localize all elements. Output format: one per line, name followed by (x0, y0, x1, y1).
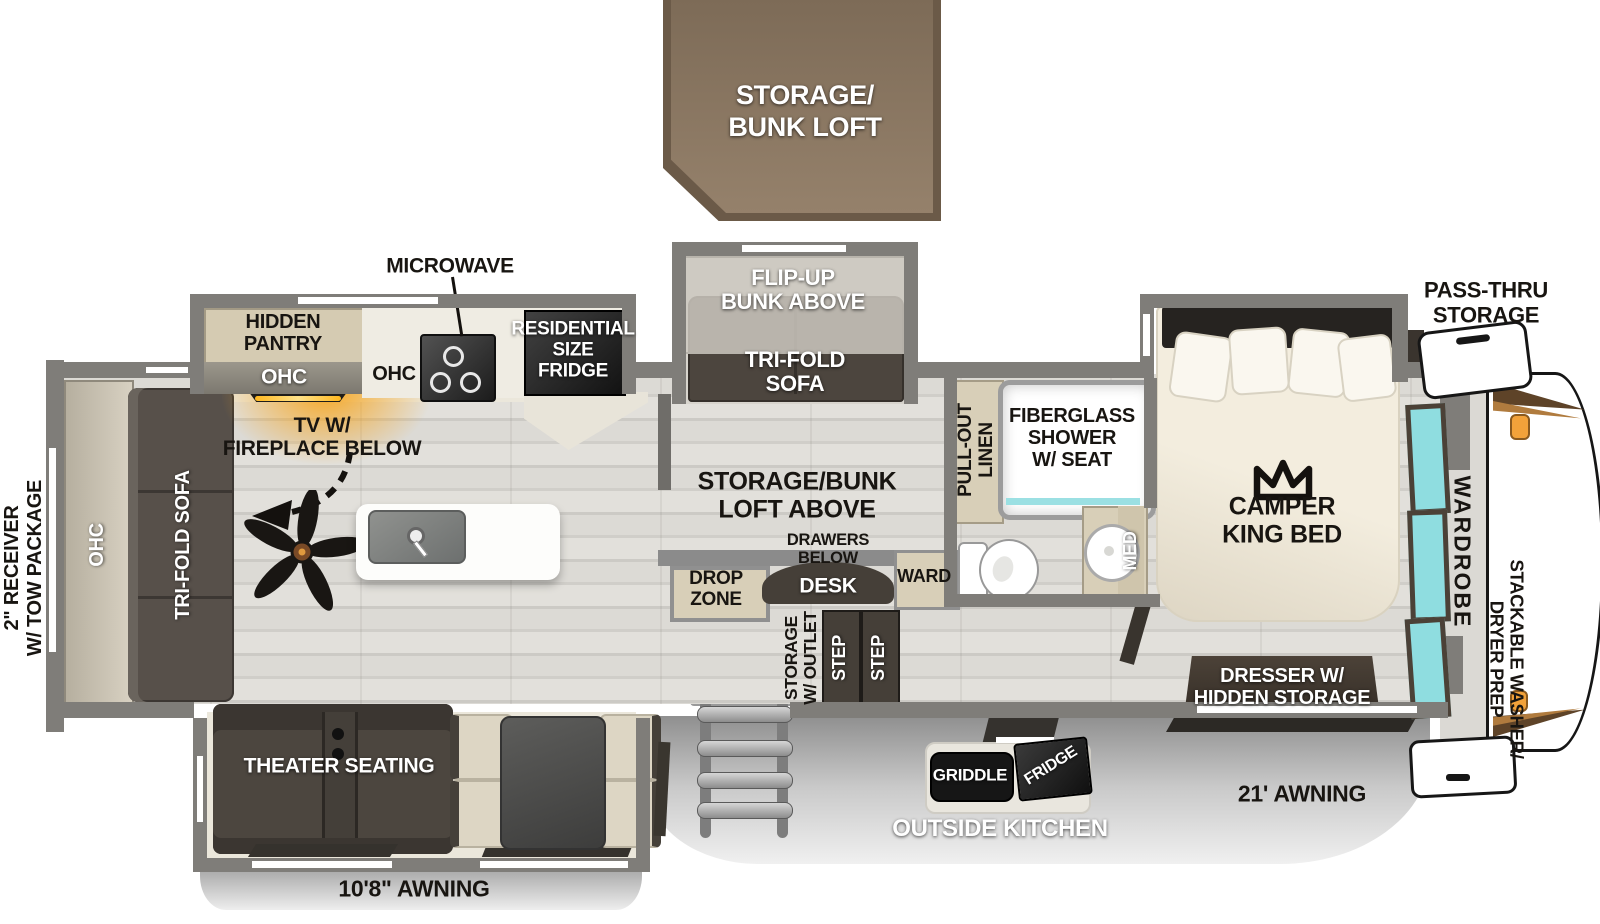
fireplace-flame-strip (255, 396, 341, 401)
griddle-label: GRIDDLE (933, 767, 1007, 786)
step-label-2: STEP (869, 635, 889, 681)
pass-thru-label: PASS-THRUSTORAGE (1424, 278, 1548, 329)
shower-sill (1006, 498, 1140, 505)
loft-above-label: STORAGE/BUNKLOFT ABOVE (698, 469, 897, 524)
rear-window-strip (49, 448, 56, 652)
dinette-chair (600, 714, 661, 780)
dresser-label: DRESSER W/HIDDEN STORAGE (1194, 665, 1371, 709)
counter-ohc-label: OHC (372, 363, 416, 385)
hidden-pantry-label: HIDDENPANTRY (244, 311, 322, 355)
bed-slide-wall-right (1392, 294, 1408, 382)
theater-slide-window (197, 756, 203, 822)
rear-sofa-label: TRI-FOLD SOFA (172, 470, 194, 619)
drop-zone-label: DROPZONE (689, 569, 743, 611)
theater-bottom-window (252, 861, 392, 868)
awning-left-label: 10'8" AWNING (338, 876, 489, 901)
tv-fireplace-label: TV W/FIREPLACE BELOW (223, 414, 422, 460)
entry-step-rung (697, 706, 793, 723)
stove-cooktop (420, 334, 496, 402)
microwave-label: MICROWAVE (386, 254, 514, 277)
bunk-slide-wall-right (904, 242, 918, 404)
theater-bottom-window (480, 861, 628, 868)
bed-pillow (1336, 333, 1397, 403)
med-label: MED (1121, 531, 1141, 570)
washer-prep-label: STACKABLE WASHER/DRYER PREP (1486, 559, 1527, 758)
drawers-below-label: DRAWERSBELOW (787, 531, 869, 567)
bath-wall-bottom (944, 594, 1160, 607)
awning-right-label: 21' AWNING (1238, 781, 1366, 806)
rear-ohc-label: OHC (86, 523, 108, 567)
cap-handle-top (1510, 414, 1530, 440)
bed-pillow (1228, 326, 1290, 396)
bunk-slide-wall-left (672, 242, 686, 404)
pass-thru-door (1416, 320, 1533, 401)
loft-box-label: STORAGE/BUNK LOFT (728, 80, 881, 144)
flip-up-bunk-label: FLIP-UPBUNK ABOVE (721, 266, 865, 314)
bed-pillow (1168, 330, 1235, 403)
front-window (1407, 509, 1451, 622)
front-window (1405, 403, 1451, 515)
entry-step-rung (697, 802, 793, 819)
bed-slide-window (1143, 314, 1150, 356)
stove-burner (443, 346, 464, 367)
storage-outlet-label: STORAGEW/ OUTLET (782, 611, 821, 705)
theater-seating-label: THEATER SEATING (244, 754, 435, 777)
king-bed-label: CAMPERKING BED (1222, 494, 1342, 549)
step-label-1: STEP (830, 635, 850, 681)
bath-wall-right (1144, 378, 1157, 508)
ward-label: WARD (897, 567, 951, 587)
kitchen-slide-wall-left (190, 294, 204, 394)
bath-sink-drain (1104, 546, 1114, 556)
top-window-strip-a (146, 367, 188, 373)
bunk-sofa-label: TRI-FOLDSOFA (745, 348, 845, 396)
theater-slide-wall-right (636, 718, 650, 872)
floor-mat (248, 844, 398, 857)
top-wall-b (634, 362, 674, 378)
stove-burner (430, 372, 451, 393)
shower-label: FIBERGLASS SHOWER W/ SEAT (1009, 405, 1135, 471)
residential-fridge-label: RESIDENTIAL SIZE FRIDGE (511, 320, 634, 383)
pull-out-linen-label: PULL-OUTLINEN (956, 403, 998, 497)
theater-cupholder (332, 728, 344, 740)
baggage-door-handle (1446, 774, 1470, 781)
receiver-label: 2" RECEIVERW/ TOW PACKAGE (1, 480, 47, 656)
kitchen-slide-window (298, 297, 438, 304)
wardrobe-label: WARDROBE (1449, 476, 1474, 629)
bottom-wall-a (60, 702, 194, 718)
kitchen-half-wall (658, 394, 671, 490)
bunk-slide-window (742, 245, 846, 252)
ceiling-fan-icon (240, 490, 364, 614)
bed-slide-wall-top (1140, 294, 1406, 308)
entry-step-rung (697, 740, 793, 757)
top-wall-c (916, 362, 1142, 378)
pantry-ohc-label: OHC (261, 365, 307, 388)
entry-step-rung (697, 772, 793, 789)
dinette-chair (600, 780, 661, 848)
dinette-table (500, 716, 606, 850)
desk-label: DESK (799, 574, 856, 597)
floorplan-canvas: STORAGE/BUNK LOFT 2" RECEIVERW/ TOW PACK… (0, 0, 1600, 924)
stove-burner (460, 372, 481, 393)
outside-kitchen-label: OUTSIDE KITCHEN (892, 816, 1108, 842)
